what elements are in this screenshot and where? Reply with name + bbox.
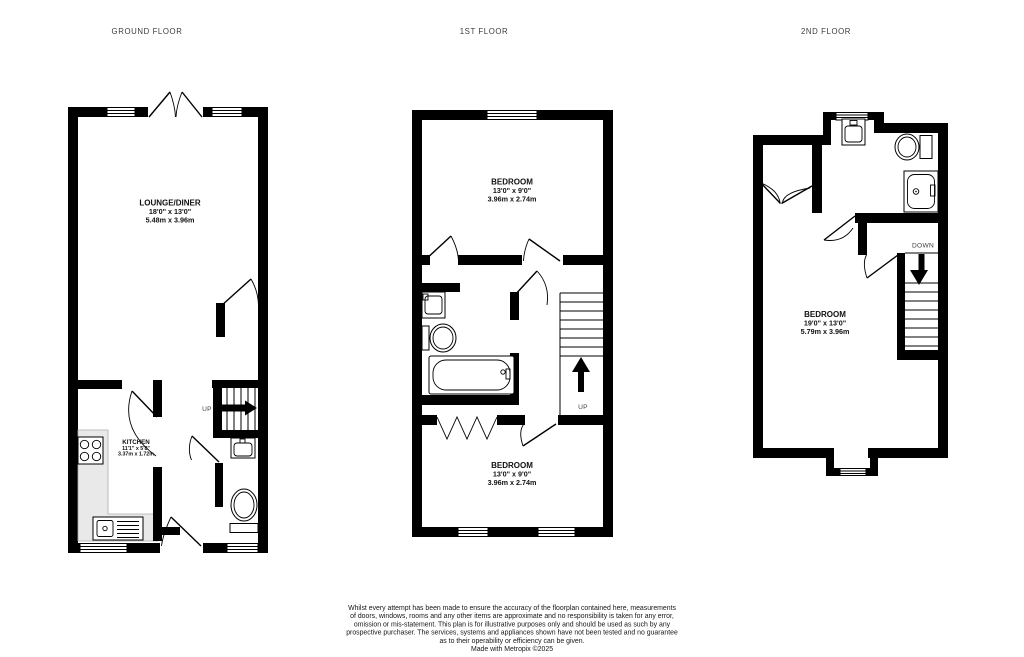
sink-icon (93, 517, 143, 540)
first-stairs-label: UP (578, 404, 588, 411)
second-floor-plan: DOWN BEDROOM 19'0" x 13'0" 5.79m x 3.96m (753, 112, 948, 476)
basin-icon (422, 292, 445, 318)
lounge-dims-metric: 5.48m x 3.96m (146, 216, 195, 225)
disclaimer-line: of doors, windows, rooms and any other i… (350, 613, 674, 620)
window-icon (212, 108, 242, 117)
hob-icon (78, 437, 103, 464)
bathtub-icon (429, 356, 514, 394)
first-floor-title: 1ST FLOOR (460, 27, 509, 36)
window-icon (538, 528, 575, 537)
window-icon (840, 469, 866, 476)
second-floor-area (758, 117, 943, 472)
floorplan-canvas: GROUND FLOOR 1ST FLOOR 2ND FLOOR (0, 0, 1024, 657)
disclaimer-line: omission or mis-statement. This plan is … (354, 621, 671, 628)
window-icon (80, 544, 127, 553)
down-arrow-icon (919, 254, 925, 272)
metropix-credit: Made with Metropix ©2025 (471, 645, 553, 653)
window-icon (107, 108, 135, 117)
disclaimer-line: Whilst every attempt has been made to en… (348, 605, 676, 612)
second-floor-title: 2ND FLOOR (801, 27, 851, 36)
wc-basin-icon (231, 438, 255, 458)
toilet-icon (422, 324, 456, 352)
bedroom3-dims-metric: 5.79m x 3.96m (801, 327, 850, 336)
toilet-icon (230, 489, 258, 533)
disclaimer-line: prospective purchaser. The services, sys… (346, 630, 678, 637)
window-icon (487, 111, 537, 120)
disclaimer-line: as to their operability or efficiency ca… (439, 638, 584, 645)
bedroom2-dims-metric: 3.96m x 2.74m (488, 478, 537, 487)
first-floor-plan: UP BEDROOM 13'0" x 9'0" 3.96m x 2.74m BE… (412, 111, 608, 537)
basin-icon (842, 119, 865, 145)
up-arrow-icon (221, 405, 245, 412)
ground-floor-title: GROUND FLOOR (112, 27, 183, 36)
disclaimer: Whilst every attempt has been made to en… (346, 605, 678, 653)
bedroom1-dims-metric: 3.96m x 2.74m (488, 195, 537, 204)
up-arrow-icon (578, 372, 584, 392)
ground-stairs-label: UP (202, 406, 212, 413)
ground-floor-plan: UP LOUNGE/DINER (68, 92, 263, 554)
window-icon (458, 528, 488, 537)
shower-icon (904, 171, 938, 212)
kitchen-label: KITCHEN (122, 439, 150, 446)
toilet-icon (895, 134, 932, 160)
floorplan-page: GROUND FLOOR 1ST FLOOR 2ND FLOOR (0, 0, 1024, 657)
window-icon (227, 544, 258, 553)
second-stairs-label: DOWN (912, 243, 934, 250)
kitchen-dims-metric: 3.37m x 1.72m (118, 452, 154, 458)
